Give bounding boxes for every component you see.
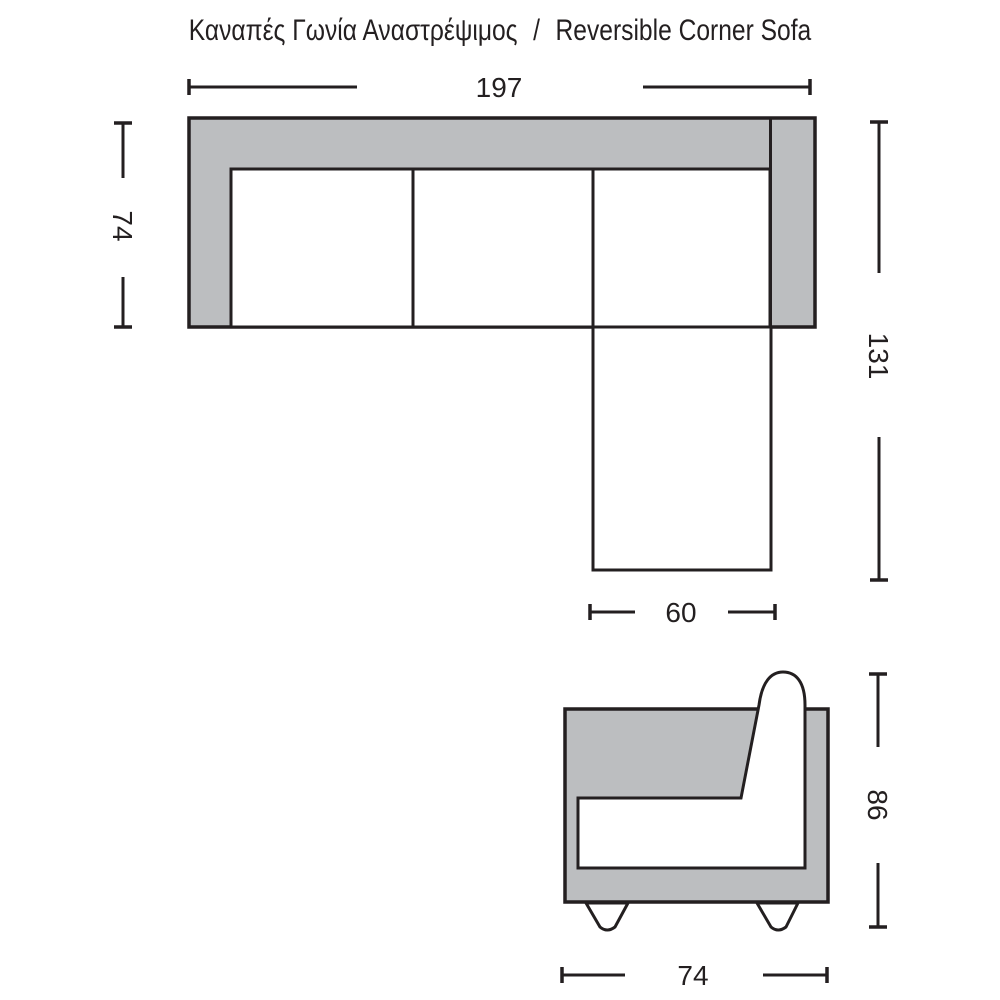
dim-label-height: 86 [862,789,893,820]
dim-label-depth: 74 [107,210,138,241]
dim-total-width: 197 [189,72,810,103]
side-view-foot-right [757,903,798,930]
dim-label-chaise-width: 60 [665,597,696,628]
dim-height: 86 [862,674,893,927]
dim-chaise-width: 60 [590,597,775,628]
dim-side-depth: 74 [562,960,827,991]
sofa-technical-drawing: 197 74 131 60 [0,0,1000,1000]
dim-depth: 74 [107,123,138,327]
top-view [189,118,815,570]
diagram-page: Καναπές Γωνία Αναστρέψιμος / Reversible … [0,0,1000,1000]
dim-right-length: 131 [863,122,894,580]
dim-label-side-depth: 74 [677,960,708,991]
top-view-seat-area [231,169,770,327]
side-view [565,672,828,930]
side-view-foot-left [586,903,628,930]
top-view-chaise [593,327,771,570]
dim-label-right-length: 131 [863,333,894,380]
dim-label-total-width: 197 [476,72,523,103]
